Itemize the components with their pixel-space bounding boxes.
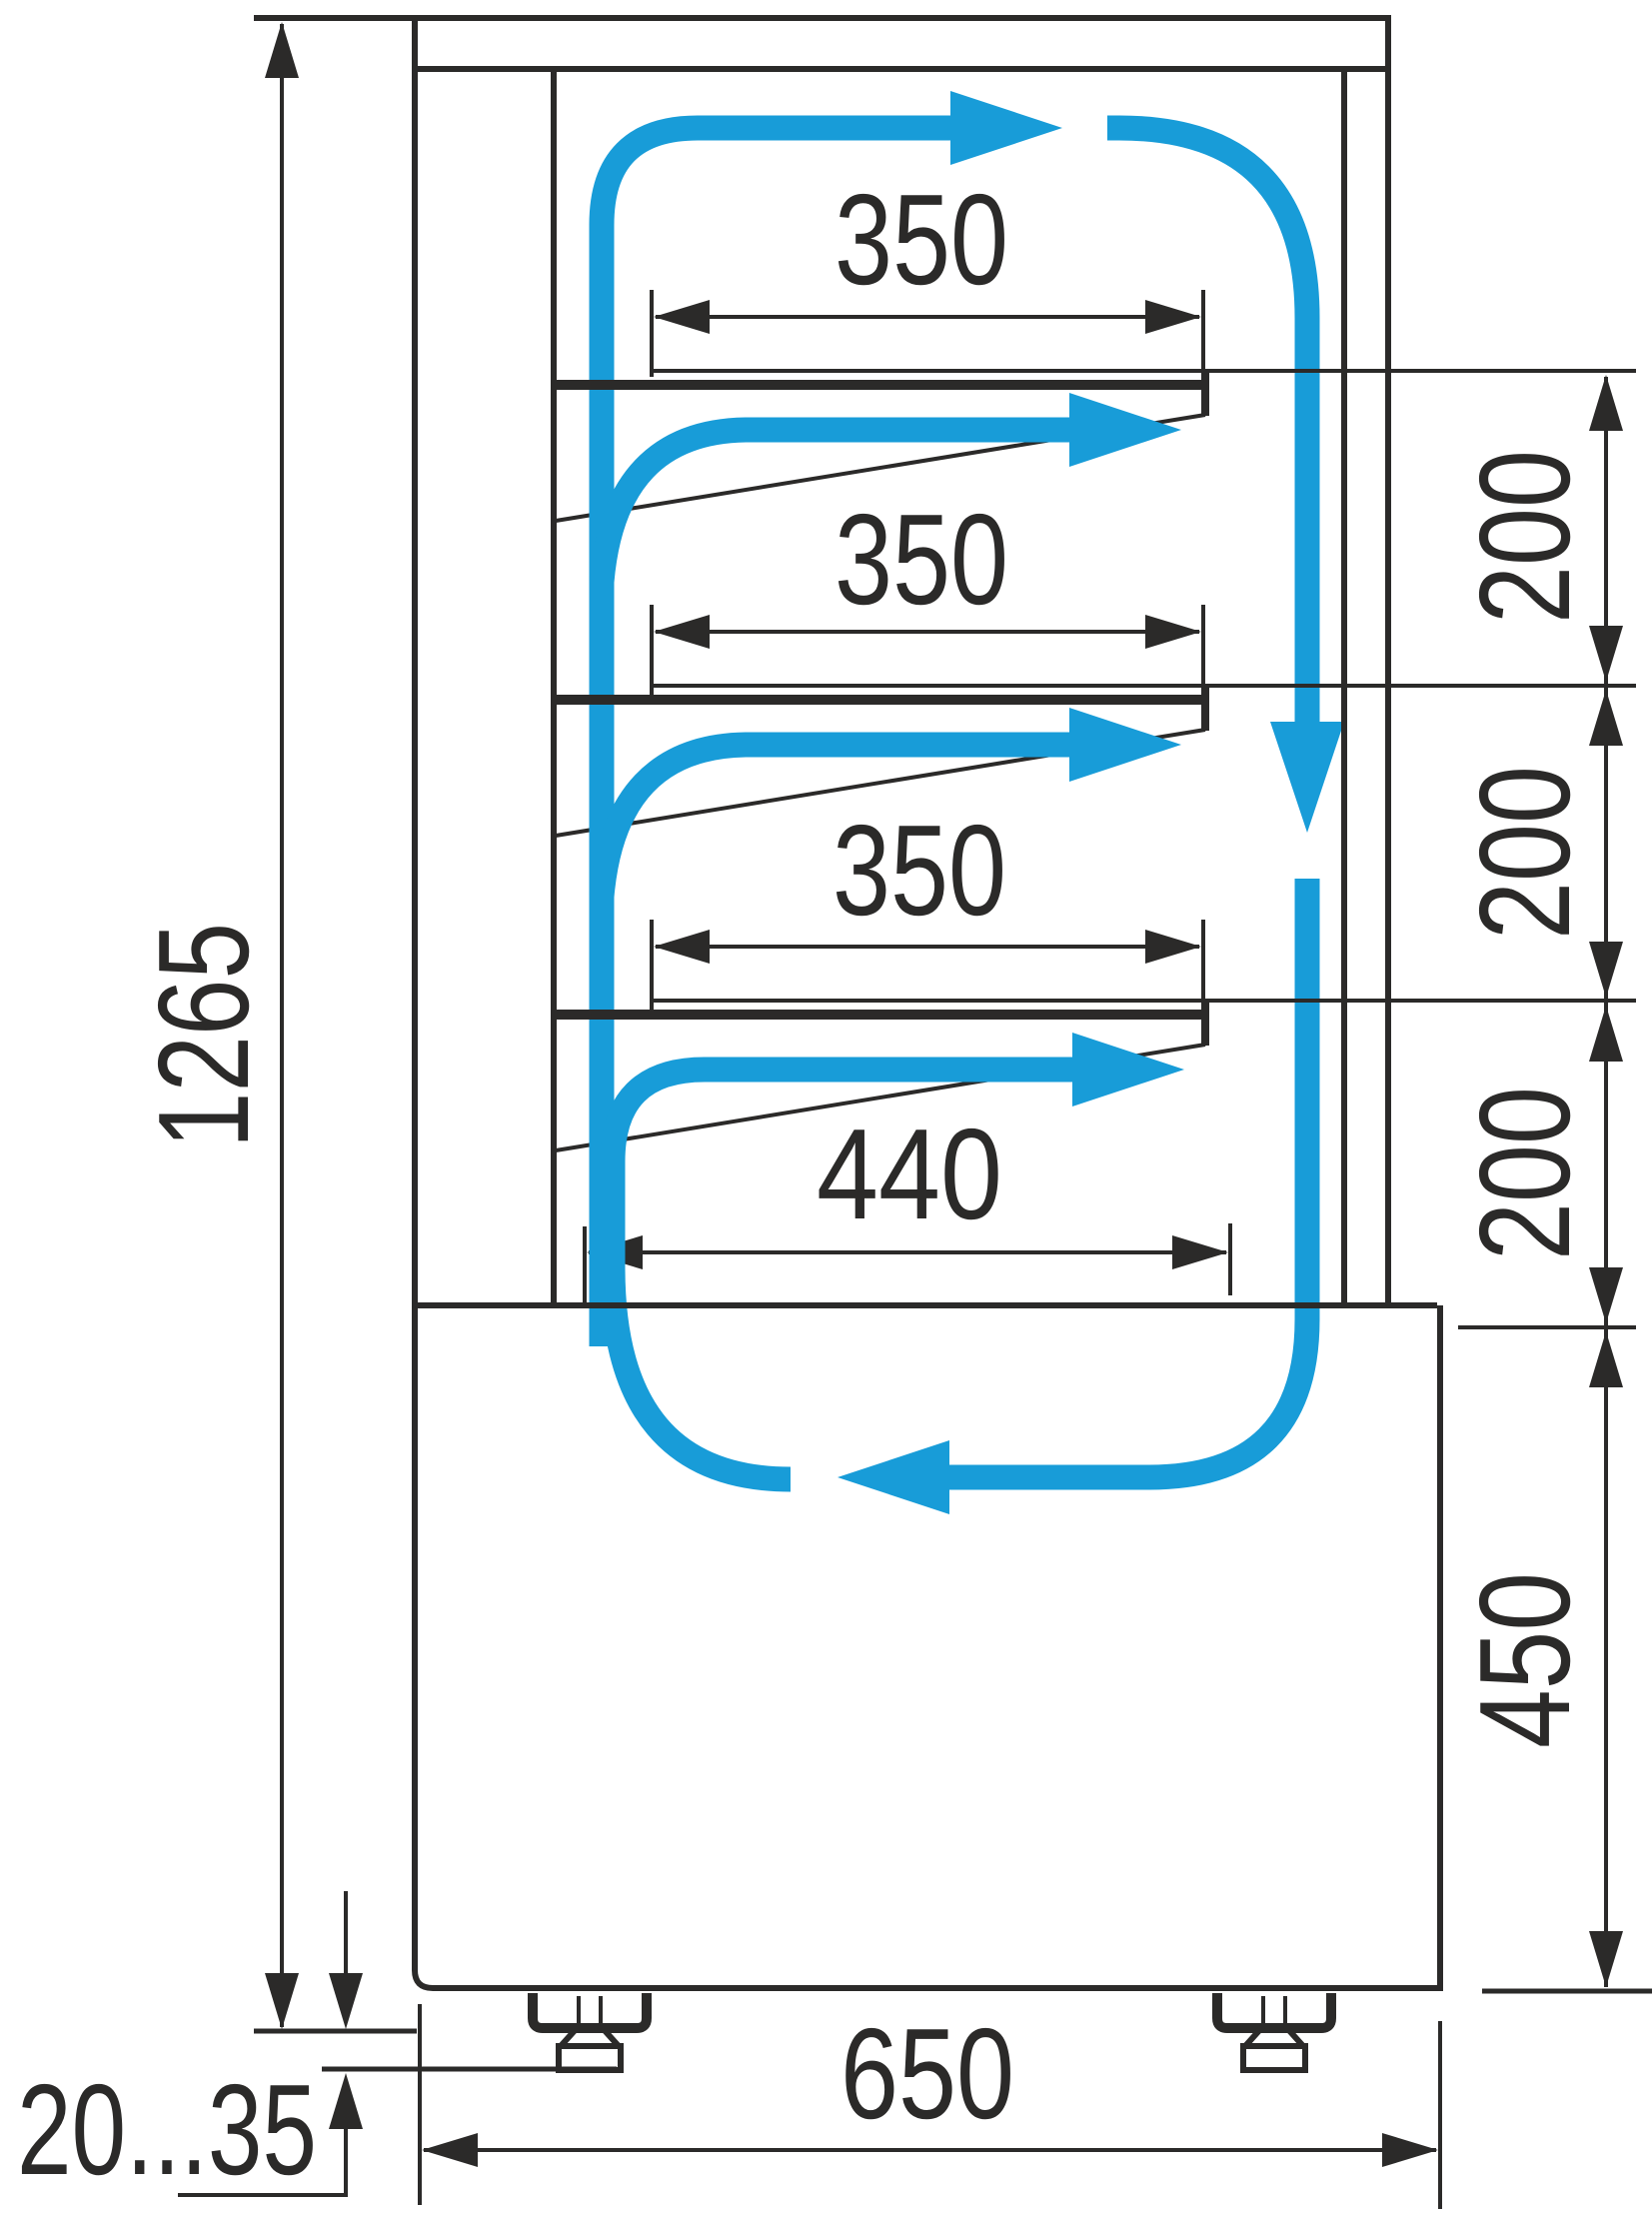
- svg-text:650: 650: [840, 2002, 1014, 2146]
- svg-text:1265: 1265: [132, 923, 276, 1148]
- svg-text:200: 200: [1453, 450, 1597, 624]
- svg-text:350: 350: [834, 488, 1008, 632]
- svg-text:450: 450: [1453, 1572, 1597, 1748]
- svg-text:200: 200: [1453, 1087, 1597, 1260]
- svg-text:20...35: 20...35: [17, 2058, 317, 2202]
- svg-text:350: 350: [834, 168, 1008, 312]
- svg-text:350: 350: [832, 799, 1006, 943]
- svg-text:200: 200: [1453, 766, 1597, 940]
- svg-text:440: 440: [817, 1103, 1002, 1246]
